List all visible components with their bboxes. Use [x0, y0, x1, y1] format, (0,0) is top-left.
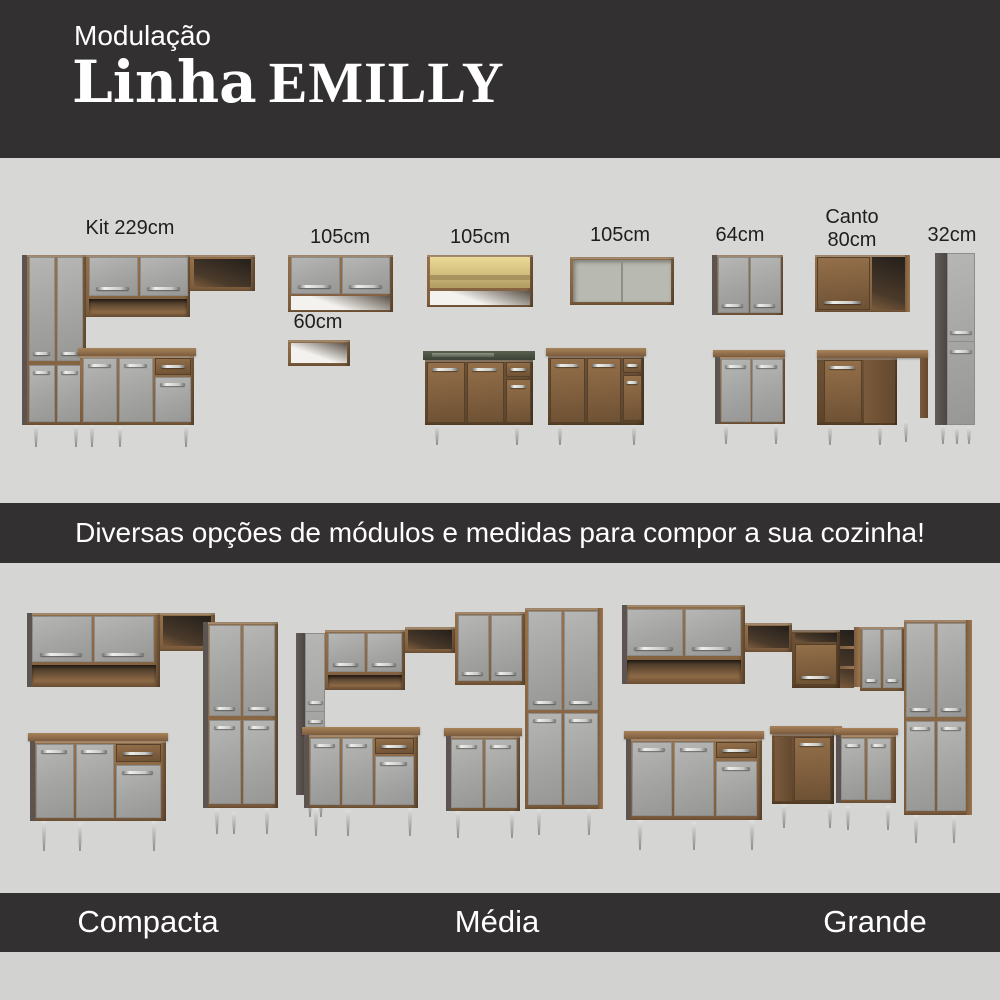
tagline-text: Diversas opções de módulos e medidas par…: [0, 503, 1000, 563]
small-base-cabinet: [836, 735, 896, 803]
side-wall-cabinet: [860, 627, 904, 691]
double-wall-cabinet: [455, 612, 525, 685]
base-cabinet: [30, 741, 166, 821]
open-niche: [288, 340, 350, 366]
corner-base-cabinet: [817, 358, 897, 425]
wall-cabinet: [27, 613, 160, 687]
base-cabinet: [548, 356, 644, 425]
size-label-grande: Grande: [765, 893, 985, 952]
module-label-nicho-60: 60cm: [268, 311, 368, 334]
tall-cabinet-front: [947, 253, 975, 425]
open-niche: [190, 255, 255, 291]
wall-cabinet-glass: [427, 255, 533, 307]
open-wall-cabinet: [570, 257, 674, 305]
size-label-media: Média: [387, 893, 607, 952]
module-label-aereo-105-vidro: 105cm: [425, 226, 535, 249]
module-label-canto-line2: 80cm: [800, 229, 904, 252]
wall-cabinet: [622, 605, 745, 684]
corner-open-shelves: [840, 630, 854, 688]
wall-cabinet: [325, 630, 405, 690]
small-base-cabinet: [446, 736, 520, 811]
base-cabinet: [304, 735, 418, 808]
module-label-aereo-105: 105cm: [285, 226, 395, 249]
tall-cabinet: [525, 608, 603, 809]
corner-wall-cabinet: [815, 255, 910, 312]
module-label-aereo-105-aberto: 105cm: [565, 224, 675, 247]
collection-title: LinhaEMILLY: [72, 48, 505, 116]
title-brand-word: EMILLY: [269, 50, 505, 115]
wall-cabinet: [288, 255, 393, 312]
catalog-page: { "header": { "eyebrow": "Modulação", "t…: [0, 0, 1000, 1000]
open-niche: [745, 623, 792, 652]
tall-cabinet: [904, 620, 972, 815]
sink-countertop: [423, 351, 535, 360]
base-cabinet: [715, 357, 785, 424]
module-label-aereo-64: 64cm: [690, 224, 790, 247]
tall-cabinet: [22, 255, 86, 425]
wall-cabinet: [86, 255, 190, 317]
open-niche: [405, 627, 455, 653]
corner-wall-cabinet: [792, 630, 840, 688]
tall-cabinet: [203, 622, 278, 808]
size-label-compacta: Compacta: [38, 893, 258, 952]
header-banner: Modulação LinhaEMILLY: [0, 0, 1000, 158]
base-cabinet: [80, 356, 194, 425]
base-cabinet: [626, 739, 762, 820]
title-line-word: Linha: [72, 48, 257, 116]
wall-cabinet: [712, 255, 783, 315]
module-label-kit-229: Kit 229cm: [50, 217, 210, 240]
module-label-paneleiro-32: 32cm: [902, 224, 1000, 247]
sink-base-cabinet: [425, 360, 533, 425]
corner-base-cabinet: [772, 734, 834, 804]
module-label-canto-line1: Canto: [800, 206, 904, 229]
